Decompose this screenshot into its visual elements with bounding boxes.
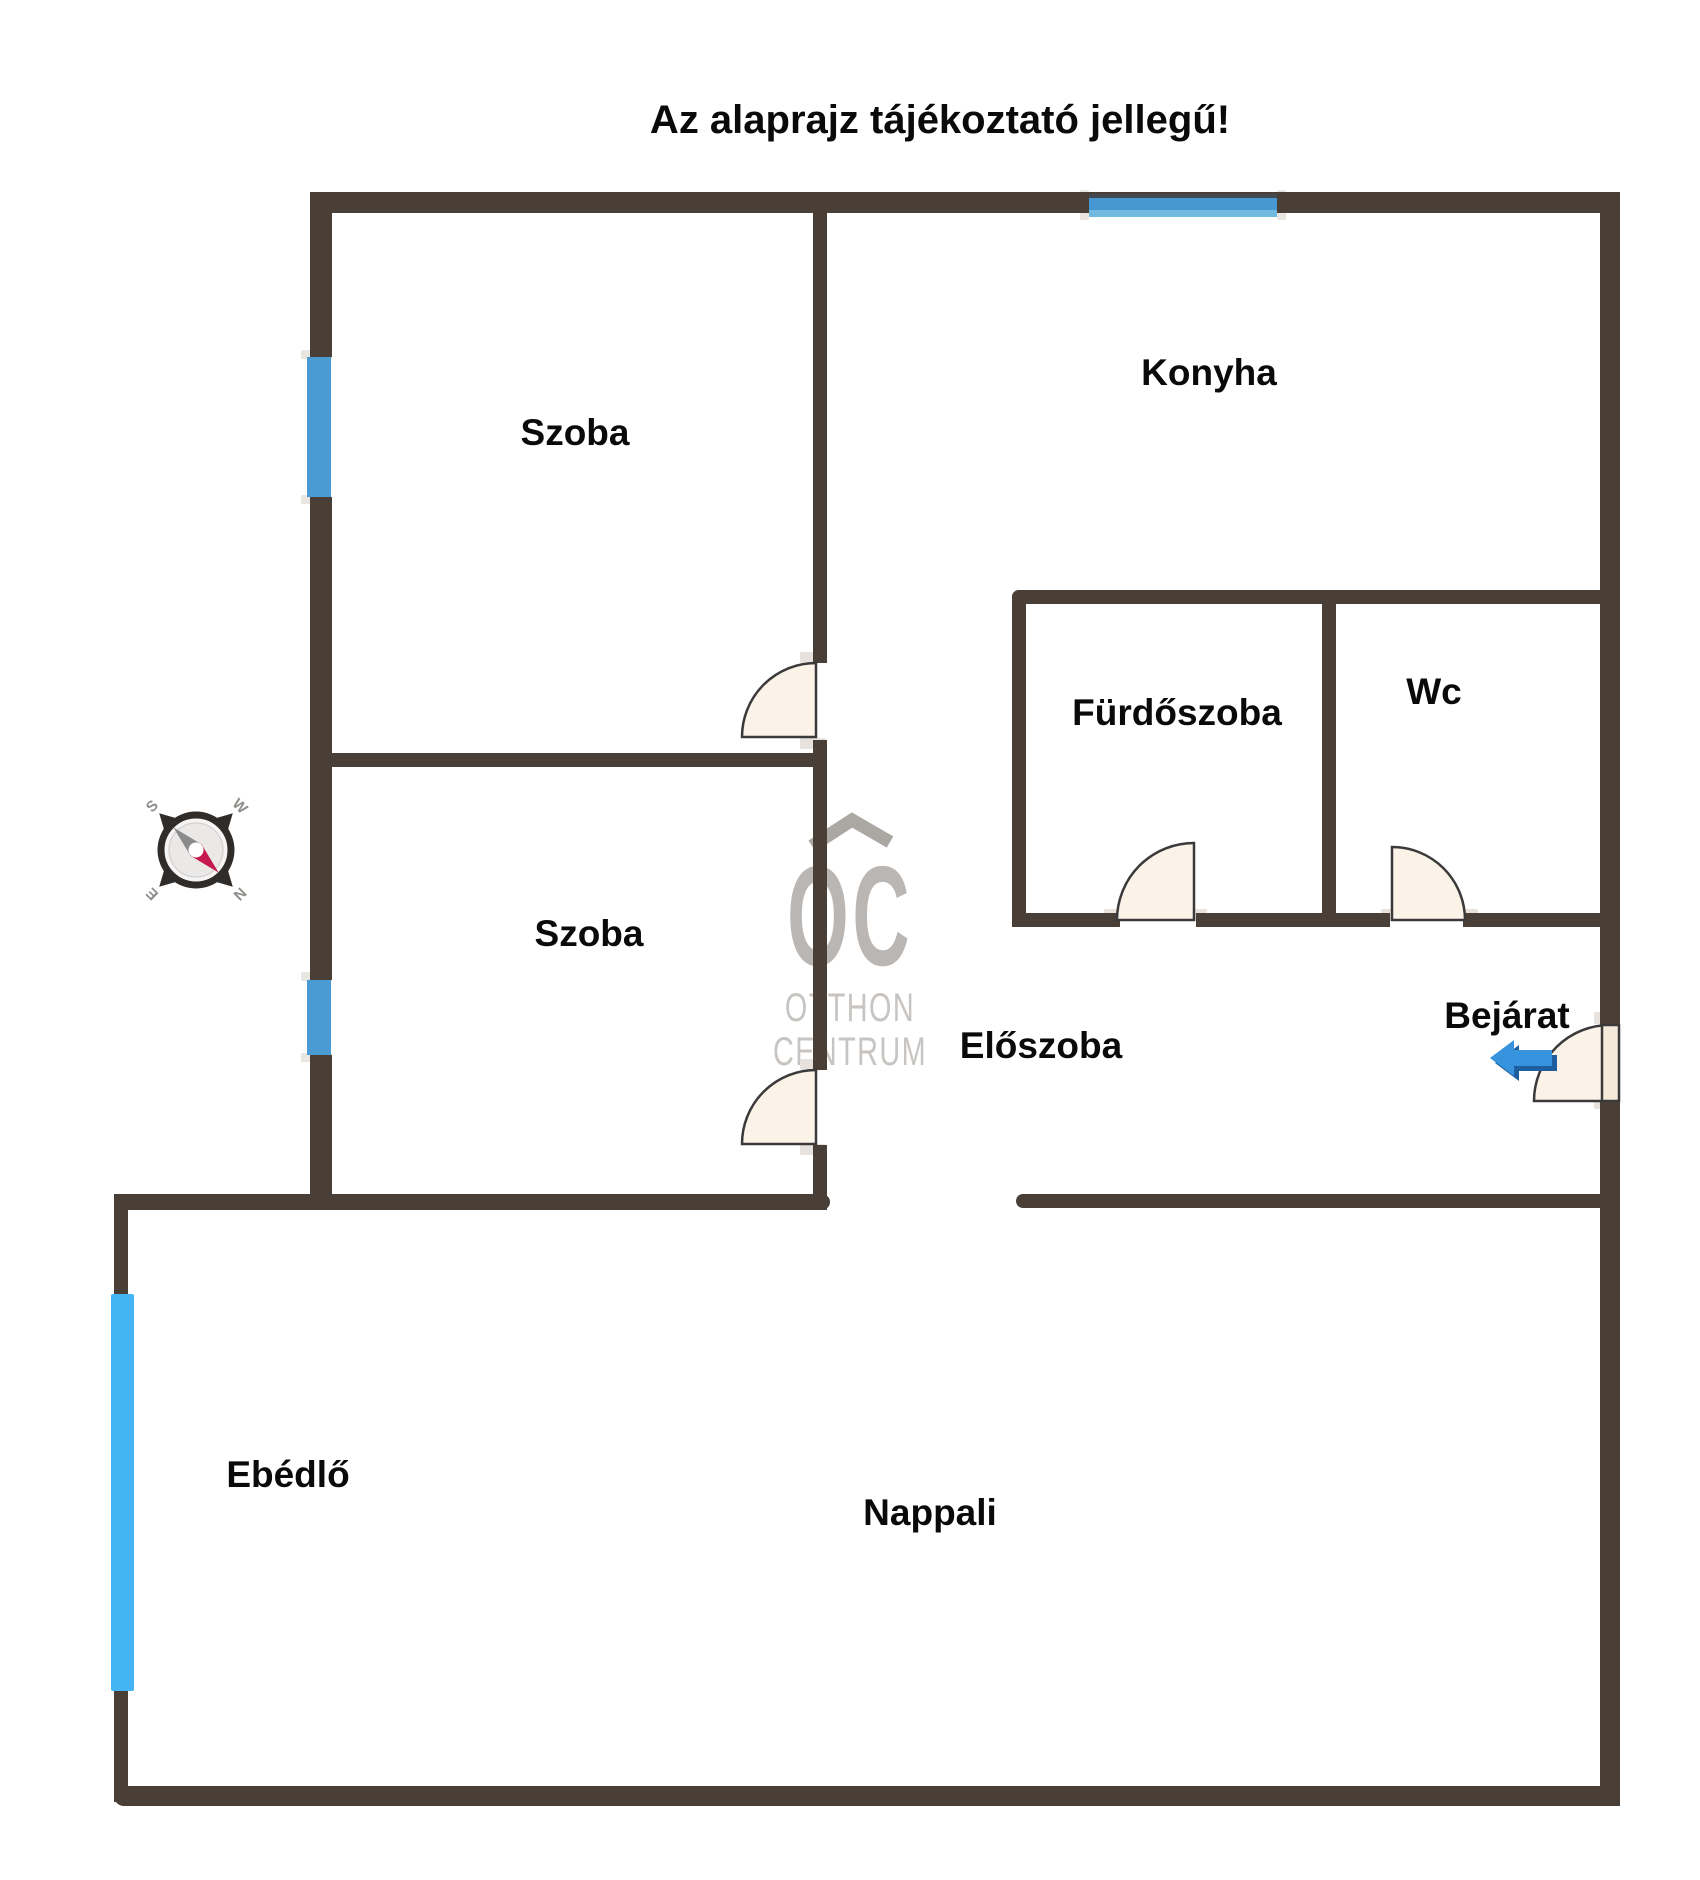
wall-left-lower-b xyxy=(114,1690,128,1802)
door-wc xyxy=(1388,840,1470,928)
compass-icon: S W E N xyxy=(130,784,262,916)
wall-jog-horizontal xyxy=(114,1194,830,1210)
door-szoba-also xyxy=(737,1065,823,1153)
compass-letter-s: S xyxy=(143,797,162,816)
wall-left-upper-a xyxy=(310,192,332,357)
door-szoba-felso xyxy=(737,658,823,746)
room-label-bejarat: Bejárat xyxy=(1444,995,1569,1037)
wall-bath-bottom-left xyxy=(1012,913,1120,927)
window-konyha xyxy=(1089,194,1277,217)
room-label-eloszoba: Előszoba xyxy=(960,1025,1122,1067)
wall-eloszoba-south xyxy=(1016,1194,1620,1208)
wall-interior-vertical-c xyxy=(813,1145,827,1210)
room-label-nappali: Nappali xyxy=(863,1492,997,1534)
wall-bath-top xyxy=(1012,590,1600,604)
floor-plan: Az alaprajz tájékoztató jellegű! OC OTTH… xyxy=(0,0,1700,1880)
wall-interior-vertical-a xyxy=(813,213,827,663)
wall-bath-bottom-right xyxy=(1463,913,1600,927)
room-label-furdoszoba: Fürdőszoba xyxy=(1072,692,1282,734)
plan-disclaimer-title: Az alaprajz tájékoztató jellegű! xyxy=(650,98,1230,143)
wall-left-upper-b xyxy=(310,497,332,980)
watermark-logo: OC xyxy=(787,846,913,988)
window-szoba-also xyxy=(307,980,331,1055)
wall-bath-divider xyxy=(1322,604,1336,927)
room-label-szoba-also: Szoba xyxy=(535,913,644,955)
wall-interior-vertical-b xyxy=(813,740,827,1070)
room-label-wc: Wc xyxy=(1406,671,1462,713)
wall-szoba-divider xyxy=(332,753,815,767)
room-label-ebedlo: Ebédlő xyxy=(226,1454,349,1496)
wall-bottom xyxy=(114,1786,1620,1806)
window-szoba-felso xyxy=(307,357,331,497)
wall-bath-left xyxy=(1012,590,1026,927)
wall-right-upper xyxy=(1600,192,1620,1025)
wall-left-upper-c xyxy=(310,1055,332,1194)
room-label-szoba-felso: Szoba xyxy=(521,412,630,454)
room-label-konyha: Konyha xyxy=(1141,352,1277,394)
wall-left-lower-a xyxy=(114,1194,128,1295)
entrance-arrow-icon xyxy=(1488,1034,1572,1086)
window-ebedlo xyxy=(111,1294,134,1691)
wall-top xyxy=(310,192,1620,213)
compass-letter-e: E xyxy=(143,884,162,903)
watermark-line1: OTTHON xyxy=(785,986,915,1031)
wall-bath-bottom-mid xyxy=(1196,913,1390,927)
door-furdoszoba xyxy=(1112,836,1202,928)
